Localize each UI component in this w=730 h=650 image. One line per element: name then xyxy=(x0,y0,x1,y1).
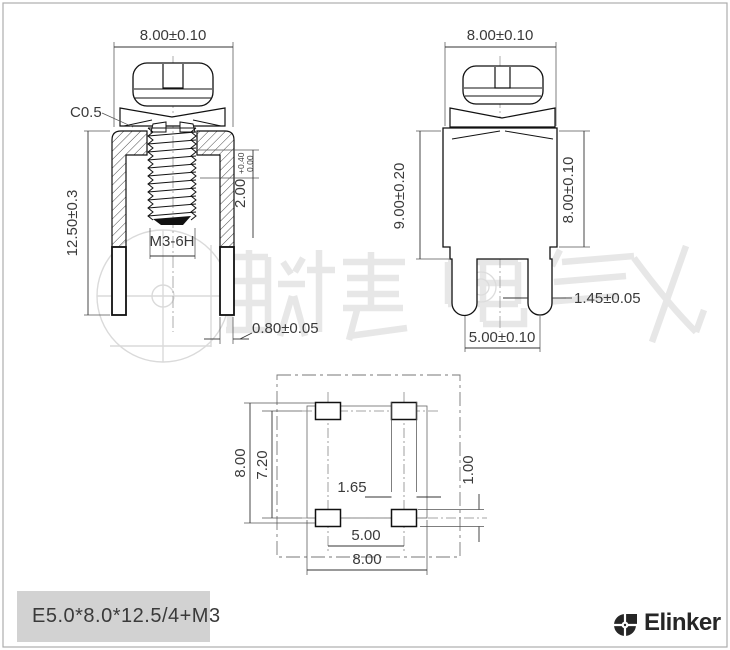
side-body-height-dim: 8.00±0.10 xyxy=(560,157,577,224)
pin-right-front xyxy=(220,247,234,315)
technical-drawing-canvas: 8.00±0.10 12.50±0.3 C0.5 2.00 +0.40 0.00… xyxy=(0,0,730,650)
drawing-sheet: 8.00±0.10 12.50±0.3 C0.5 2.00 +0.40 0.00… xyxy=(0,0,730,650)
brand-name: Elinker xyxy=(644,609,721,637)
pad-top-left xyxy=(316,403,341,420)
screw-depth-dim: 2.00 xyxy=(232,179,249,208)
footprint-body-outline xyxy=(307,406,427,518)
footprint-width-dim: 8.00 xyxy=(232,448,249,477)
footprint-pad-height-dim: 1.00 xyxy=(460,455,477,484)
clamp-plate-side xyxy=(450,108,555,127)
footprint-pitch-dim: 5.00 xyxy=(351,527,380,544)
body-section-right xyxy=(197,131,234,247)
side-pin-width-dim: 1.45±0.05 xyxy=(574,290,641,307)
brand-logo: Elinker xyxy=(610,604,722,642)
screw-tip xyxy=(153,216,191,225)
pad-bottom-right xyxy=(392,510,417,527)
front-width-dim: 8.00±0.10 xyxy=(140,27,207,44)
screw-head-front xyxy=(133,63,213,106)
elinker-logo-icon xyxy=(610,606,642,640)
side-pin-pitch-dim: 5.00±0.10 xyxy=(469,329,536,346)
body-section-left xyxy=(112,131,147,247)
screw-head-side xyxy=(463,66,543,104)
footprint-view: 8.00 7.20 1.65 1.00 5.00 xyxy=(232,375,487,575)
pad-bottom-left xyxy=(316,510,341,527)
footprint-pad-width-dim: 1.65 xyxy=(337,479,366,496)
screw-thread xyxy=(148,128,196,220)
title-block: E5.0*8.0*12.5/4+M3 xyxy=(17,591,210,642)
pin-left-front xyxy=(112,247,126,315)
part-number: E5.0*8.0*12.5/4+M3 xyxy=(32,605,221,628)
side-width-dim: 8.00±0.10 xyxy=(467,27,534,44)
thread-callout: M3-6H xyxy=(149,233,194,250)
screw-depth-tol-lower: 0.00 xyxy=(245,155,255,172)
footprint-pad-span-dim: 7.20 xyxy=(254,450,271,479)
chamfer-callout: C0.5 xyxy=(70,104,102,121)
footprint-height-dim: 8.00 xyxy=(352,551,381,568)
pin-thickness-dim: 0.80±0.05 xyxy=(252,320,319,337)
side-overall-height-dim: 9.00±0.20 xyxy=(391,163,408,230)
pad-top-right xyxy=(392,403,417,420)
front-height-dim: 12.50±0.3 xyxy=(64,190,81,257)
